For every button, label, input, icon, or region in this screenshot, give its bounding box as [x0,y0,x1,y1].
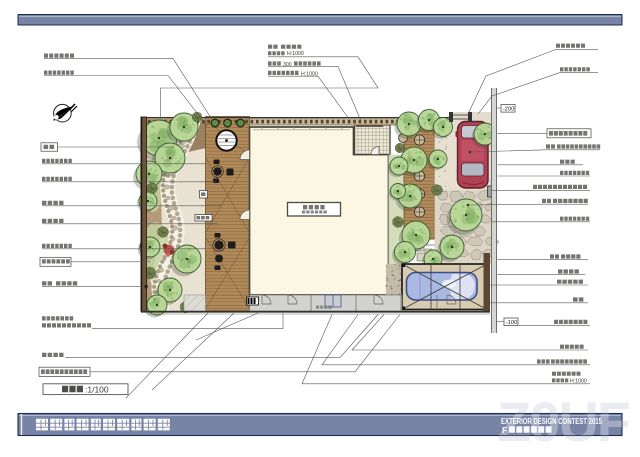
svg-text:F: F [502,426,507,435]
svg-text:EXTERIOR DESIGN CONTEST 2015: EXTERIOR DESIGN CONTEST 2015 [501,417,602,426]
svg-text:-200: -200 [503,107,515,113]
svg-text:-100: -100 [506,320,518,326]
svg-text:H:1000: H:1000 [301,72,318,78]
svg-text:H:1000: H:1000 [287,51,304,57]
svg-text::1/100: :1/100 [85,385,109,395]
svg-text:300: 300 [283,62,292,68]
